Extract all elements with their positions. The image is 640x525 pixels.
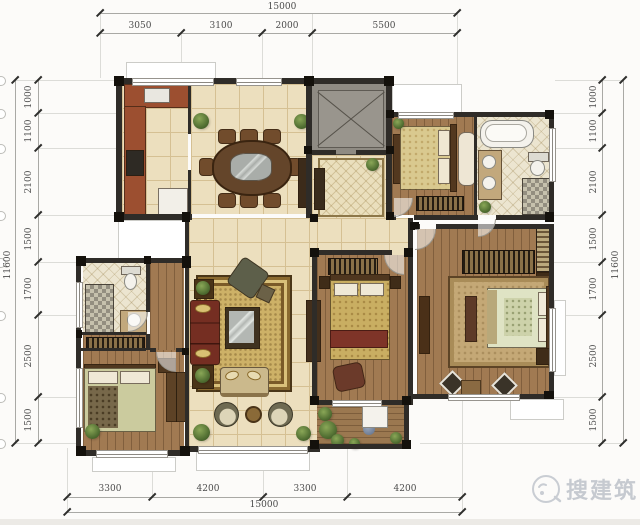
bathtub-basin bbox=[485, 124, 527, 142]
column bbox=[402, 440, 411, 449]
bedroom2-pillow bbox=[438, 130, 450, 156]
round-side-table bbox=[245, 406, 262, 423]
column bbox=[386, 212, 394, 220]
dining-chair bbox=[263, 193, 281, 208]
plant-foyer bbox=[366, 158, 379, 171]
bay-window-master-bottom bbox=[510, 399, 564, 420]
grid-line bbox=[16, 80, 118, 81]
wicker-chair bbox=[214, 402, 239, 427]
dim-bottom-segment: 3300 bbox=[294, 484, 317, 494]
grid-line bbox=[39, 148, 118, 149]
column bbox=[545, 110, 554, 119]
window-master-bottom bbox=[448, 394, 520, 401]
dim-right-segment: 1500 bbox=[589, 409, 599, 432]
study-wardrobe bbox=[328, 258, 378, 275]
window-bathroom1 bbox=[549, 128, 556, 182]
dim-left-total: 11600 bbox=[3, 251, 13, 280]
wall-study-right bbox=[408, 218, 413, 405]
wall-study-left bbox=[312, 250, 317, 405]
dining-chair bbox=[218, 193, 236, 208]
plant-bedroom3 bbox=[85, 424, 100, 439]
dim-line-top-total bbox=[100, 13, 457, 14]
grid-bubble bbox=[0, 144, 6, 154]
dim-top-segment: 2000 bbox=[276, 21, 299, 31]
watermark-logo-icon bbox=[530, 473, 562, 505]
column bbox=[384, 76, 394, 86]
study-bed-runner bbox=[330, 330, 388, 348]
wall-kitchen-dining-divider bbox=[188, 84, 191, 134]
dim-bottom-total: 15000 bbox=[250, 500, 279, 510]
bathroom1-sink bbox=[482, 155, 496, 169]
grid-line bbox=[347, 449, 348, 497]
dim-top-segment: 5500 bbox=[373, 21, 396, 31]
column bbox=[404, 248, 413, 257]
window-dining bbox=[236, 78, 282, 86]
bedroom2-dresser bbox=[416, 196, 464, 211]
column bbox=[114, 76, 124, 86]
wall-terrace-bottom bbox=[312, 444, 409, 449]
dim-left-segment: 2500 bbox=[24, 345, 34, 368]
master-wardrobe bbox=[462, 250, 535, 274]
glass-door-terrace bbox=[332, 400, 382, 407]
column bbox=[310, 396, 319, 405]
column bbox=[182, 256, 191, 268]
window-master bbox=[549, 308, 556, 372]
shower-bathroom2 bbox=[85, 284, 114, 333]
foyer-console bbox=[314, 168, 325, 210]
dim-line-bottom-segments bbox=[67, 497, 462, 498]
grid-line bbox=[16, 443, 80, 444]
grid-line bbox=[67, 448, 68, 512]
watermark-text: 搜建筑 bbox=[566, 473, 638, 505]
grid-bubble bbox=[0, 211, 6, 221]
corridor-floor bbox=[150, 262, 184, 352]
dim-left-segment: 1500 bbox=[24, 409, 34, 432]
wall-bathroom2-bottom bbox=[81, 332, 146, 335]
study-nightstand bbox=[390, 276, 401, 289]
wall-hall-top bbox=[414, 215, 478, 220]
dim-top-segment: 3100 bbox=[210, 21, 233, 31]
plant-bedroom2 bbox=[393, 118, 404, 129]
grid-line bbox=[100, 14, 101, 78]
plant-living-corner bbox=[296, 426, 311, 441]
wall-master-right bbox=[549, 224, 554, 308]
bay-window-bedroom3 bbox=[92, 457, 176, 472]
dim-left-segment: 2100 bbox=[24, 171, 34, 194]
plant-terrace bbox=[318, 407, 332, 421]
grid-line bbox=[39, 397, 80, 398]
study-pillow bbox=[360, 283, 384, 296]
window-bedroom3-left bbox=[76, 368, 83, 428]
master-bed-foot-runner bbox=[487, 290, 497, 344]
wall-kitchen-left bbox=[116, 78, 122, 220]
column bbox=[76, 256, 86, 266]
grid-line bbox=[39, 262, 80, 263]
dim-right-total: 11600 bbox=[611, 251, 621, 280]
wall-bedroom3-top bbox=[81, 348, 146, 351]
grid-line bbox=[554, 215, 602, 216]
plant-living-top bbox=[196, 281, 210, 295]
window-kitchen bbox=[132, 78, 214, 86]
sofa-throw-pillow bbox=[195, 304, 211, 313]
column bbox=[304, 146, 312, 154]
bathroom1-sink bbox=[482, 176, 496, 190]
dim-tick bbox=[619, 439, 627, 447]
window-bedroom2 bbox=[398, 112, 454, 119]
elevator-shaft bbox=[310, 82, 392, 156]
grid-line bbox=[555, 80, 623, 81]
dim-line-right-total bbox=[623, 80, 624, 444]
wall-hall-study bbox=[312, 250, 392, 255]
wall-kitchen-dining-divider bbox=[188, 170, 191, 214]
floor-plan-image: 15000 3050 3100 2000 5500 3300 4200 3300… bbox=[0, 0, 640, 525]
column bbox=[76, 330, 82, 338]
column bbox=[386, 146, 394, 154]
study-nightstand bbox=[319, 276, 330, 289]
window-living bbox=[198, 446, 308, 454]
plant-dining-left bbox=[193, 113, 209, 129]
plant-living-corner bbox=[193, 424, 210, 441]
dim-tick bbox=[458, 508, 466, 516]
dim-left-segment: 1100 bbox=[24, 120, 34, 143]
plant-bathroom1 bbox=[479, 201, 491, 213]
wall-foyer-right bbox=[386, 112, 392, 218]
bedroom2-pillow bbox=[438, 158, 450, 184]
column bbox=[76, 446, 86, 456]
dim-right-segment: 2100 bbox=[589, 171, 599, 194]
wall-bed2-bath1-divider bbox=[474, 117, 477, 215]
dim-left-segment: 1500 bbox=[24, 228, 34, 251]
grid-line bbox=[554, 397, 602, 398]
window-bedroom3-bottom bbox=[96, 450, 168, 458]
wicker-chair bbox=[268, 402, 293, 427]
plant-terrace bbox=[390, 432, 402, 444]
column bbox=[144, 256, 151, 264]
stove bbox=[126, 150, 144, 176]
grid-bubble bbox=[0, 439, 6, 449]
bedroom3-floral-throw bbox=[88, 386, 118, 428]
dim-line-top-segments bbox=[100, 33, 457, 34]
grid-line bbox=[554, 148, 602, 149]
coffee-table-mirror-top bbox=[229, 311, 254, 343]
dim-bottom-segment: 4200 bbox=[197, 484, 220, 494]
grid-line bbox=[39, 315, 80, 316]
kitchen-sink bbox=[144, 88, 170, 103]
wall-leftwing-top bbox=[76, 258, 188, 263]
column bbox=[310, 214, 318, 222]
grid-line bbox=[420, 443, 623, 444]
dim-line-left-total bbox=[15, 80, 16, 444]
bedroom3-pillow bbox=[120, 371, 150, 384]
column bbox=[310, 248, 319, 257]
master-bed-throw bbox=[504, 298, 532, 336]
column bbox=[402, 396, 411, 405]
grid-line bbox=[39, 113, 118, 114]
bay-window-bedroom2 bbox=[392, 84, 462, 114]
dim-bottom-segment: 3300 bbox=[99, 484, 122, 494]
grid-line bbox=[312, 14, 313, 78]
image-bottom-edge bbox=[0, 519, 640, 525]
bedroom3-wardrobe bbox=[166, 372, 187, 422]
grid-line bbox=[39, 215, 116, 216]
dim-right-segment: 2500 bbox=[589, 345, 599, 368]
wall-living-left bbox=[185, 214, 189, 452]
dim-right-segment: 1000 bbox=[589, 86, 599, 109]
window-bathroom2 bbox=[76, 282, 83, 328]
column bbox=[544, 391, 554, 399]
column bbox=[545, 212, 554, 222]
dim-left-segment: 1700 bbox=[24, 278, 34, 301]
sofa-throw-pillow bbox=[195, 349, 211, 358]
dim-top-total: 15000 bbox=[268, 2, 297, 12]
dim-right-segment: 1700 bbox=[589, 278, 599, 301]
watermark: 搜建筑 bbox=[530, 473, 638, 505]
toilet-bowl-bathroom1 bbox=[530, 160, 545, 176]
dim-right-segment: 1500 bbox=[589, 228, 599, 251]
column bbox=[386, 110, 394, 118]
grid-line bbox=[554, 113, 602, 114]
grid-bubble bbox=[0, 393, 6, 403]
wall-bathroom2-right bbox=[146, 262, 150, 312]
dim-top-segment: 3050 bbox=[129, 21, 152, 31]
wall-kitchen-bottom bbox=[116, 214, 192, 220]
grid-bubble bbox=[0, 311, 6, 321]
grid-bubble bbox=[0, 109, 6, 119]
grid-bubble bbox=[0, 76, 6, 86]
dining-table-glass bbox=[230, 153, 272, 181]
dim-left-segment: 1000 bbox=[24, 86, 34, 109]
dim-right-segment: 1100 bbox=[589, 120, 599, 143]
master-bench bbox=[465, 296, 477, 342]
column bbox=[310, 440, 319, 449]
column bbox=[182, 212, 190, 222]
plant-living-bottom bbox=[195, 368, 210, 383]
column bbox=[180, 446, 190, 456]
dim-line-bottom-total bbox=[67, 512, 462, 513]
column bbox=[304, 76, 314, 86]
bedroom2-headboard bbox=[450, 124, 457, 192]
master-tv-console bbox=[419, 296, 430, 354]
grid-line bbox=[262, 33, 263, 82]
bay-window-living bbox=[196, 452, 310, 471]
toilet-bowl-bathroom2 bbox=[124, 273, 137, 290]
void-area bbox=[118, 220, 186, 260]
column bbox=[114, 212, 124, 222]
column bbox=[182, 348, 189, 355]
grid-line bbox=[554, 262, 602, 263]
study-pillow bbox=[334, 283, 358, 296]
bedroom3-pillow bbox=[88, 371, 118, 384]
dim-bottom-segment: 4200 bbox=[394, 484, 417, 494]
terrace-table bbox=[362, 406, 388, 428]
